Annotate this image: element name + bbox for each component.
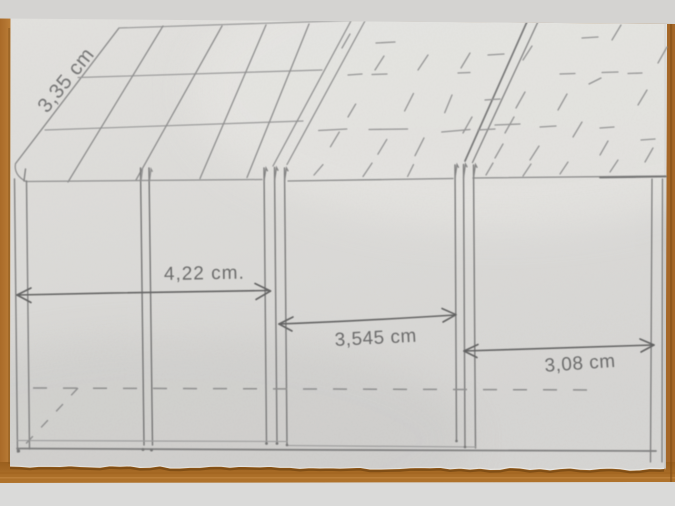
- svg-text:3,545 cm: 3,545 cm: [334, 326, 417, 351]
- svg-text:4,22 cm.: 4,22 cm.: [164, 263, 245, 285]
